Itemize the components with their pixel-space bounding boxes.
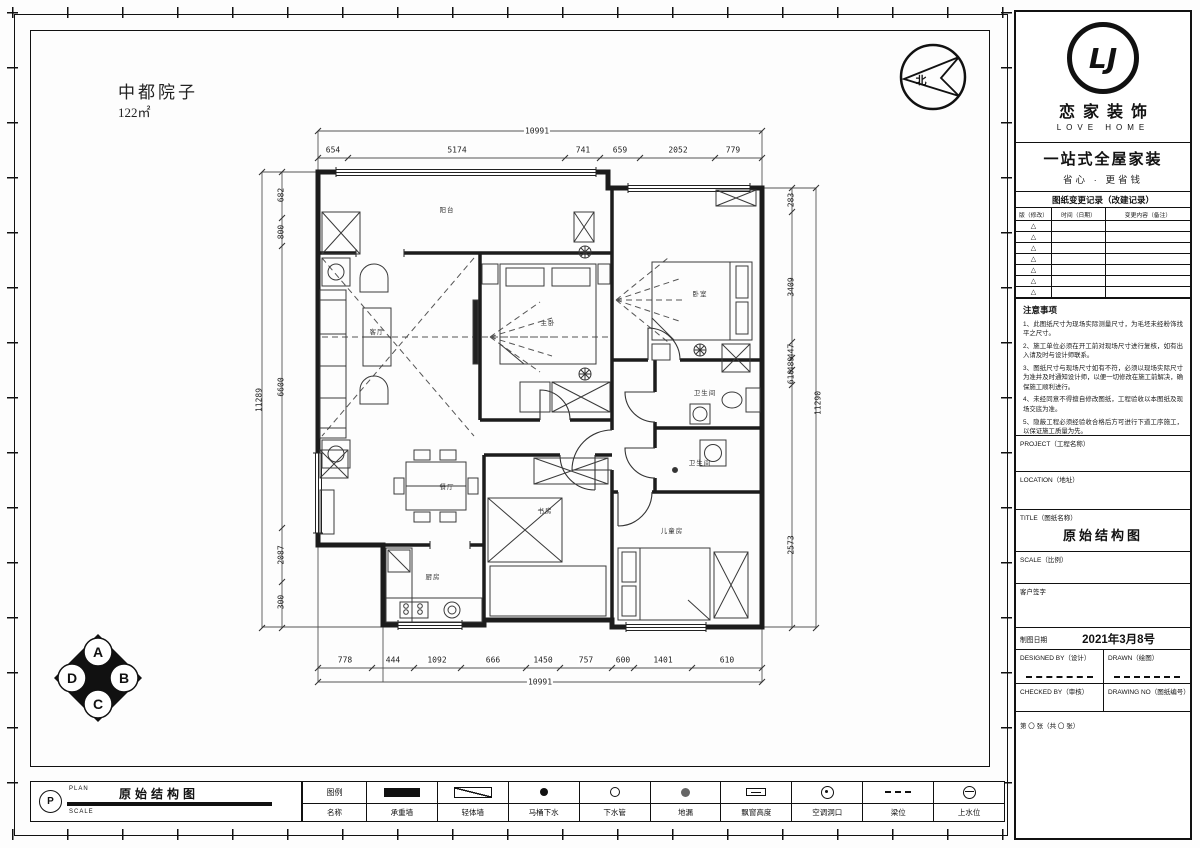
floor-plan-linework <box>0 0 1010 848</box>
revision-col-date: 时间（日期） <box>1052 208 1106 221</box>
toilet-icon <box>746 388 760 412</box>
room-label: 书房 <box>538 505 553 515</box>
field-client-signature: 客户签字 <box>1016 583 1190 627</box>
revision-triangle-icon: △ <box>1016 221 1052 232</box>
dimension-label: 1401 <box>652 656 673 665</box>
revision-date-cell <box>1052 254 1106 265</box>
note-item: 4、未经同意不得擅自修改图纸，工程验收以本图纸及现场交底为准。 <box>1023 395 1183 414</box>
elevation-letter: C <box>93 696 103 712</box>
brand-tagline-box: 一站式全屋家装 省心 · 更省钱 <box>1016 143 1190 192</box>
room-label: 餐厅 <box>440 481 455 491</box>
legend-label: 上水位 <box>934 804 1004 821</box>
field-drawn: DRAWN（绘图） <box>1103 650 1190 683</box>
drawing-sheet: 中都院子 122㎡ 北 A B C D 阳台 客厅 餐厅 厨房 主卧 卧室 卫生… <box>0 0 1010 848</box>
legend-label: 承重墙 <box>367 804 437 821</box>
field-checked: CHECKED BY（审核） <box>1016 684 1103 711</box>
field-drawing-number: DRAWING NO（图纸编号） <box>1103 684 1190 711</box>
project-title: 中都院子 <box>118 78 198 103</box>
compass-north-label: 北 <box>916 72 927 88</box>
dimension-label: 600 <box>615 656 631 665</box>
revision-desc-cell <box>1106 265 1190 276</box>
note-item: 2、施工单位必须在开工前对现场尺寸进行复核，如有出入请及时与设计师联系。 <box>1023 342 1183 361</box>
field-project: PROJECT（工程名称） <box>1016 435 1190 471</box>
bed-icon <box>500 264 596 364</box>
legend-band: P PLAN 原始结构图 SCALE 图例 名称 承重墙 轻体墙 马桶下水 <box>30 781 1005 822</box>
signature-line <box>1026 676 1093 678</box>
drawing-sheet-page: 中都院子 122㎡ 北 A B C D 阳台 客厅 餐厅 厨房 主卧 卧室 卫生… <box>0 0 1200 848</box>
plan-label: PLAN <box>69 786 89 792</box>
revision-desc-cell <box>1106 287 1190 298</box>
revision-table: 图纸变更记录（改建记录） 版（修改） 时间（日期） 变更内容（备注） △ △ △… <box>1016 192 1190 299</box>
ac-opening-icon <box>821 786 834 799</box>
field-scale-label: SCALE（比例） <box>1020 554 1067 564</box>
sink-icon <box>693 407 707 421</box>
revision-triangle-icon: △ <box>1016 276 1052 287</box>
drawing-title: 原始结构图 <box>119 785 199 802</box>
title-block-panel: LJ 恋家装饰 LOVE HOME 一站式全屋家装 省心 · 更省钱 图纸变更记… <box>1014 10 1192 840</box>
dimension-label: 5174 <box>446 146 467 155</box>
legend-item: 轻体墙 <box>437 782 508 821</box>
field-designed-drawn: DESIGNED BY（设计） DRAWN（绘图） <box>1016 649 1190 683</box>
revision-triangle-icon: △ <box>1016 254 1052 265</box>
brand-monogram: LJ <box>1089 42 1117 75</box>
field-sign-label: 客户签字 <box>1020 586 1046 596</box>
legend-label: 空调洞口 <box>792 804 862 821</box>
field-location: LOCATION（地址） <box>1016 471 1190 509</box>
legend-header-top: 图例 <box>303 782 366 804</box>
revision-desc-cell <box>1106 276 1190 287</box>
dimension-label: 1092 <box>426 656 447 665</box>
legend-item: 空调洞口 <box>791 782 862 821</box>
legend-item: 梁位 <box>862 782 933 821</box>
dimension-label: 444 <box>385 656 401 665</box>
field-drawn-label: DRAWN（绘图） <box>1108 652 1158 662</box>
revision-date-cell <box>1052 265 1106 276</box>
room-label: 儿童房 <box>661 525 684 535</box>
brand-logo: LJ 恋家装饰 LOVE HOME <box>1016 12 1190 143</box>
dimension-label: 2573 <box>787 534 796 555</box>
water-supply-icon <box>963 786 976 799</box>
revision-triangle-icon: △ <box>1016 265 1052 276</box>
dimension-label: 682 <box>277 187 286 203</box>
field-date-value: 2021年3月8号 <box>1047 631 1190 647</box>
notes-title: 注意事项 <box>1023 304 1183 316</box>
field-designed-label: DESIGNED BY（设计） <box>1020 652 1090 662</box>
field-title: TITLE（图纸名称） 原始结构图 <box>1016 509 1190 551</box>
bed-icon <box>618 548 710 620</box>
legend-item: 承重墙 <box>366 782 437 821</box>
dimension-label: 666 <box>485 656 501 665</box>
open-dot-icon <box>610 787 620 797</box>
dimension-lines <box>262 131 816 682</box>
solid-wall-icon <box>384 788 420 797</box>
dimension-label: 10991 <box>524 127 550 136</box>
dimension-label: 11289 <box>255 387 264 413</box>
room-label: 卫生间 <box>689 457 712 467</box>
field-location-label: LOCATION（地址） <box>1020 474 1079 484</box>
legend-label: 马桶下水 <box>509 804 579 821</box>
revision-date-cell <box>1052 221 1106 232</box>
dimension-label: 610 <box>787 369 796 385</box>
dimension-label: 757 <box>578 656 594 665</box>
scale-label: SCALE <box>69 809 94 815</box>
legend-item: 下水管 <box>579 782 650 821</box>
dimension-label: 10991 <box>527 678 553 687</box>
legend-label: 轻体墙 <box>438 804 508 821</box>
room-label: 厨房 <box>426 571 441 581</box>
revision-triangle-icon: △ <box>1016 232 1052 243</box>
field-sheet-label: 第 〇 张（共 〇 张） <box>1020 720 1079 730</box>
note-item: 1、此图纸尺寸为现场实际测量尺寸，为毛坯未经粉饰找平之尺寸。 <box>1023 320 1183 339</box>
revision-table-title: 图纸变更记录（改建记录） <box>1016 192 1190 208</box>
sofa-icon <box>320 300 346 428</box>
dimension-label: 3409 <box>787 276 796 297</box>
revision-desc-cell <box>1106 243 1190 254</box>
dimension-label: 300 <box>277 594 286 610</box>
revision-desc-cell <box>1106 221 1190 232</box>
room-label: 主卧 <box>541 317 556 327</box>
dimension-label: 741 <box>575 146 591 155</box>
brand-name-en: LOVE HOME <box>1057 123 1150 132</box>
legend-label: 梁位 <box>863 804 933 821</box>
field-checked-label: CHECKED BY（审核） <box>1020 686 1088 696</box>
stamp-icon: P <box>39 790 62 813</box>
note-item: 5、隐蔽工程必须经验收合格后方可进行下道工序施工，以保证施工质量为先。 <box>1023 418 1183 435</box>
dimension-label: 283 <box>787 192 796 208</box>
legend-item: 飘窗高度 <box>720 782 791 821</box>
compass-icon <box>901 45 965 109</box>
legend-item: 马桶下水 <box>508 782 579 821</box>
elevation-letter: B <box>119 670 129 686</box>
dimension-label: 11290 <box>814 390 823 416</box>
tv-icon <box>473 300 478 364</box>
stamp-letter: P <box>47 796 54 807</box>
legend-header-bottom: 名称 <box>303 804 366 821</box>
title-underline <box>67 802 272 806</box>
dimension-label: 659 <box>612 146 628 155</box>
room-label: 阳台 <box>440 204 455 214</box>
dimension-label: 779 <box>725 146 741 155</box>
note-item: 3、图纸尺寸与现场尺寸如有不符，必须以现场实际尺寸为准并及时通知设计师，以便一切… <box>1023 364 1183 392</box>
dimension-label: 2052 <box>667 146 688 155</box>
gray-dot-icon <box>681 788 690 797</box>
drawing-title-block: P PLAN 原始结构图 SCALE <box>31 782 302 821</box>
revision-triangle-icon: △ <box>1016 287 1052 298</box>
field-sheet-number: 第 〇 张（共 〇 张） <box>1016 711 1190 838</box>
dimension-label: 654 <box>325 146 341 155</box>
dimension-label: 6600 <box>277 376 286 397</box>
brand-name: 恋家装饰 <box>1051 98 1155 122</box>
revision-date-cell <box>1052 276 1106 287</box>
dimension-label: 778 <box>337 656 353 665</box>
door-symbols <box>356 249 680 549</box>
revision-date-cell <box>1052 232 1106 243</box>
beam-icon <box>885 791 911 793</box>
field-number-label: DRAWING NO（图纸编号） <box>1108 686 1190 696</box>
dimension-label: 610 <box>719 656 735 665</box>
brand-slogan: 省心 · 更省钱 <box>1063 172 1143 186</box>
room-label: 卫生间 <box>694 387 717 397</box>
revision-date-cell <box>1052 287 1106 298</box>
hatch-wall-icon <box>454 787 492 798</box>
room-label: 卧室 <box>693 288 708 298</box>
drawing-title-value: 原始结构图 <box>1016 525 1190 544</box>
legend-label: 下水管 <box>580 804 650 821</box>
elevation-letter: D <box>67 670 77 686</box>
revision-desc-cell <box>1106 254 1190 265</box>
notes-section: 注意事项 1、此图纸尺寸为现场实际测量尺寸，为毛坯未经粉饰找平之尺寸。 2、施工… <box>1016 299 1190 435</box>
dimension-label: 2087 <box>277 544 286 565</box>
legend-item: 地漏 <box>650 782 721 821</box>
revision-desc-cell <box>1106 232 1190 243</box>
legend-header-cell: 图例 名称 <box>302 782 366 821</box>
filled-dot-icon <box>540 788 548 796</box>
bed-icon <box>652 262 752 340</box>
dimension-label: 1450 <box>532 656 553 665</box>
signature-line <box>1114 676 1180 678</box>
revision-date-cell <box>1052 243 1106 254</box>
bay-window-icon <box>746 788 766 796</box>
elevation-letter: A <box>93 644 103 660</box>
revision-triangle-icon: △ <box>1016 243 1052 254</box>
legend-label: 地漏 <box>651 804 721 821</box>
brand-tagline: 一站式全屋家装 <box>1043 148 1162 169</box>
room-label: 客厅 <box>370 326 385 336</box>
field-project-label: PROJECT（工程名称） <box>1020 438 1089 448</box>
field-date-label: 制图日期 <box>1016 634 1047 644</box>
legend-item: 上水位 <box>933 782 1004 821</box>
kitchen-sink-icon <box>444 602 460 618</box>
field-title-label: TITLE（图纸名称） <box>1020 512 1077 522</box>
field-designed: DESIGNED BY（设计） <box>1016 650 1103 683</box>
dimension-label: 800 <box>277 224 286 240</box>
field-date: 制图日期 2021年3月8号 <box>1016 627 1190 649</box>
revision-col-desc: 变更内容（备注） <box>1106 208 1190 221</box>
revision-col-rev: 版（修改） <box>1016 208 1052 221</box>
legend-label: 飘窗高度 <box>721 804 791 821</box>
field-scale: SCALE（比例） <box>1016 551 1190 583</box>
field-checked-number: CHECKED BY（审核） DRAWING NO（图纸编号） <box>1016 683 1190 711</box>
brand-logo-icon: LJ <box>1067 22 1139 94</box>
project-area: 122㎡ <box>118 102 151 121</box>
